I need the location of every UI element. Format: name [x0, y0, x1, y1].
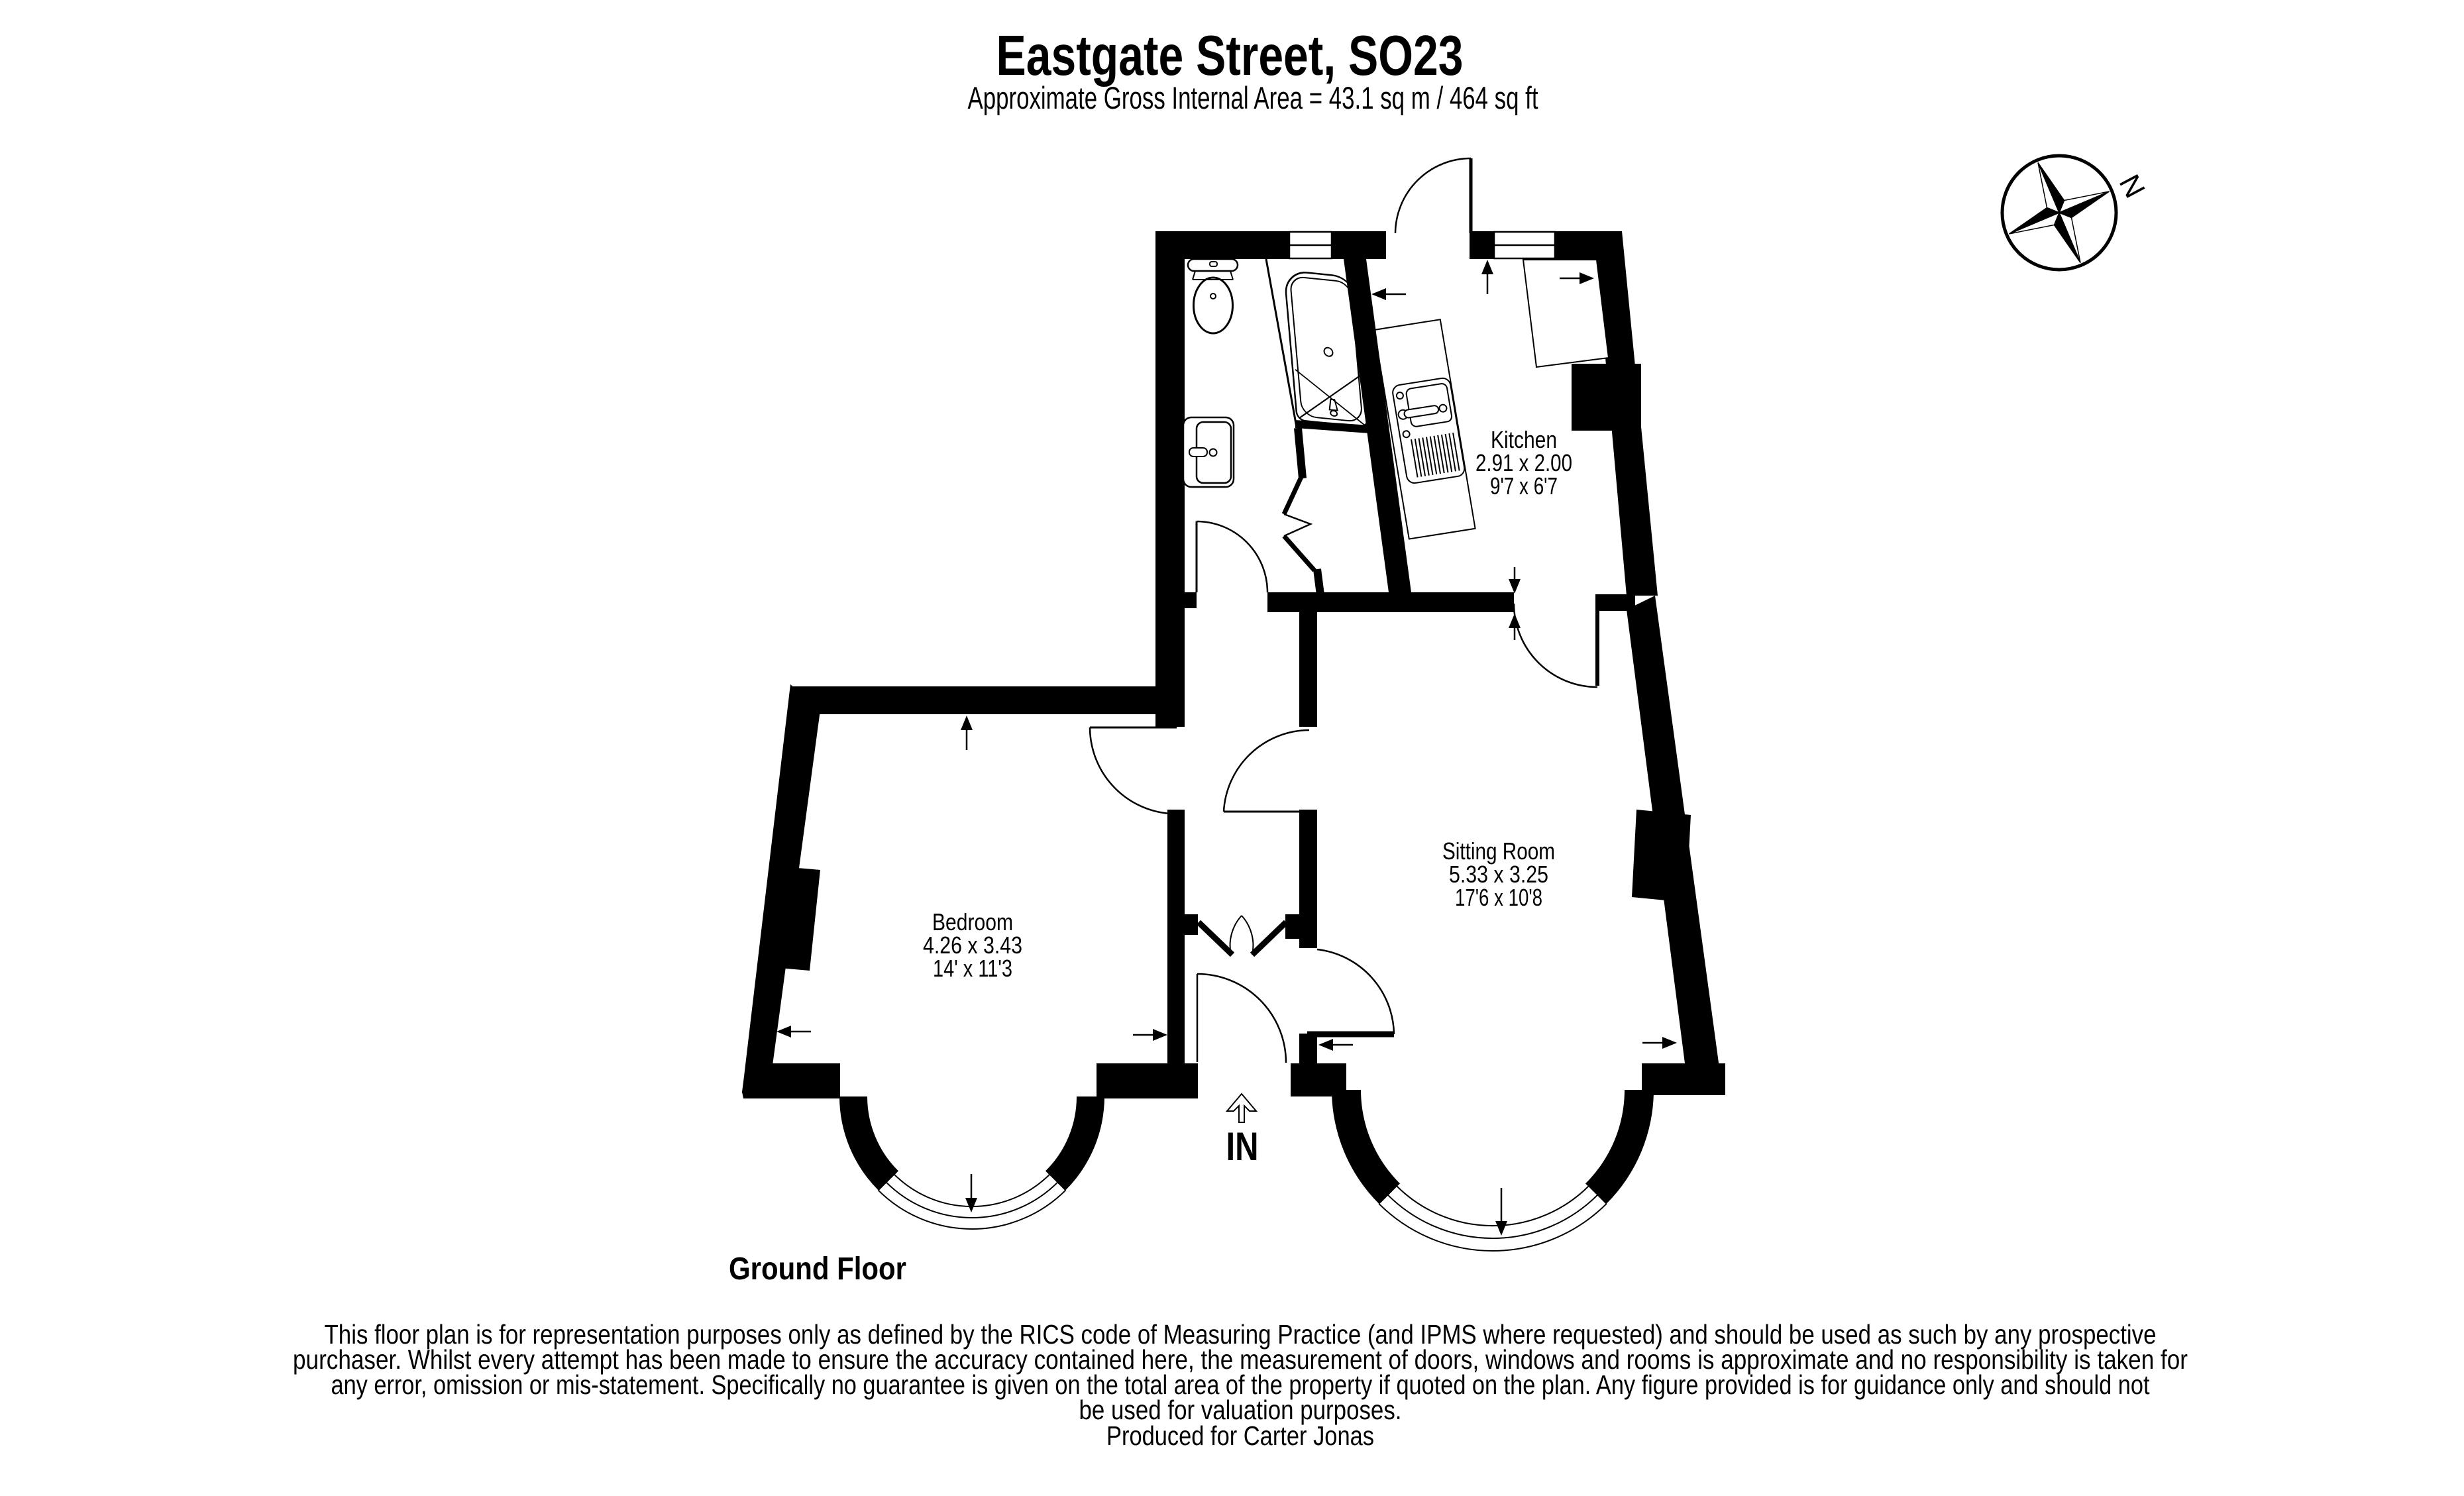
- svg-text:17'6 x 10'8: 17'6 x 10'8: [1455, 884, 1542, 911]
- svg-text:9'7 x 6'7: 9'7 x 6'7: [1490, 472, 1558, 500]
- svg-text:14' x 11'3: 14' x 11'3: [933, 955, 1012, 982]
- svg-text:Eastgate Street, SO23: Eastgate Street, SO23: [996, 25, 1464, 87]
- svg-text:Ground Floor: Ground Floor: [729, 1252, 906, 1287]
- svg-text:IN: IN: [1226, 1124, 1259, 1169]
- svg-text:Produced for Carter Jonas: Produced for Carter Jonas: [1106, 1420, 1374, 1451]
- svg-text:Approximate Gross Internal Are: Approximate Gross Internal Area = 43.1 s…: [968, 80, 1538, 115]
